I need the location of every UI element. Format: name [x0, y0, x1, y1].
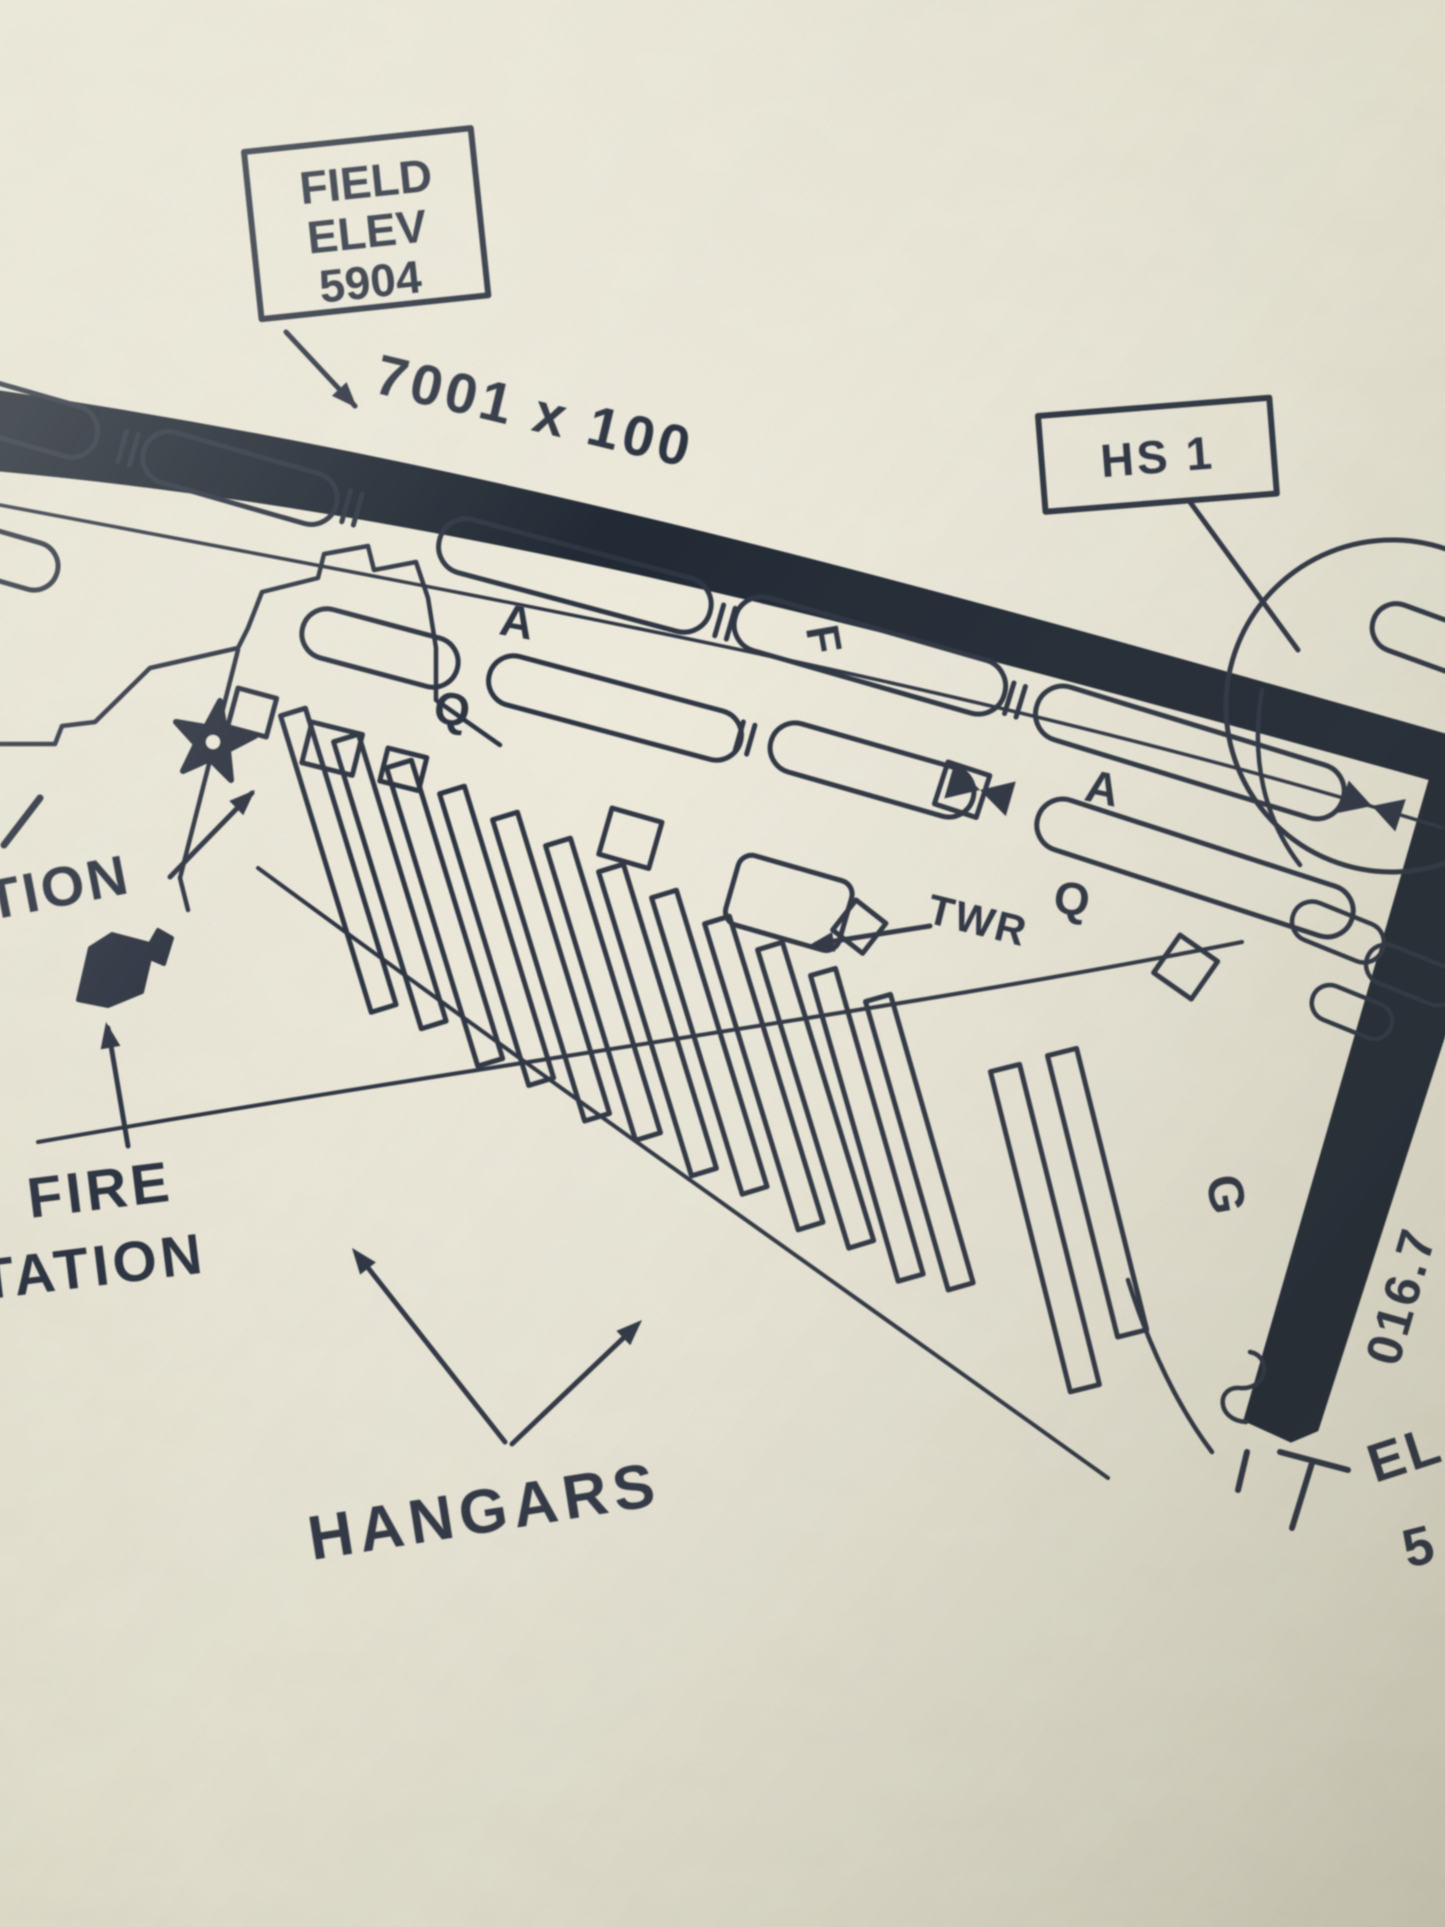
- airport-diagram-svg: FIELD ELEV 5904 7001 x 100 HS 1 A Q F A …: [0, 0, 1445, 1927]
- airport-diagram-photo: FIELD ELEV 5904 7001 x 100 HS 1 A Q F A …: [0, 0, 1445, 1927]
- photo-lighting-overlay: [0, 0, 1445, 1927]
